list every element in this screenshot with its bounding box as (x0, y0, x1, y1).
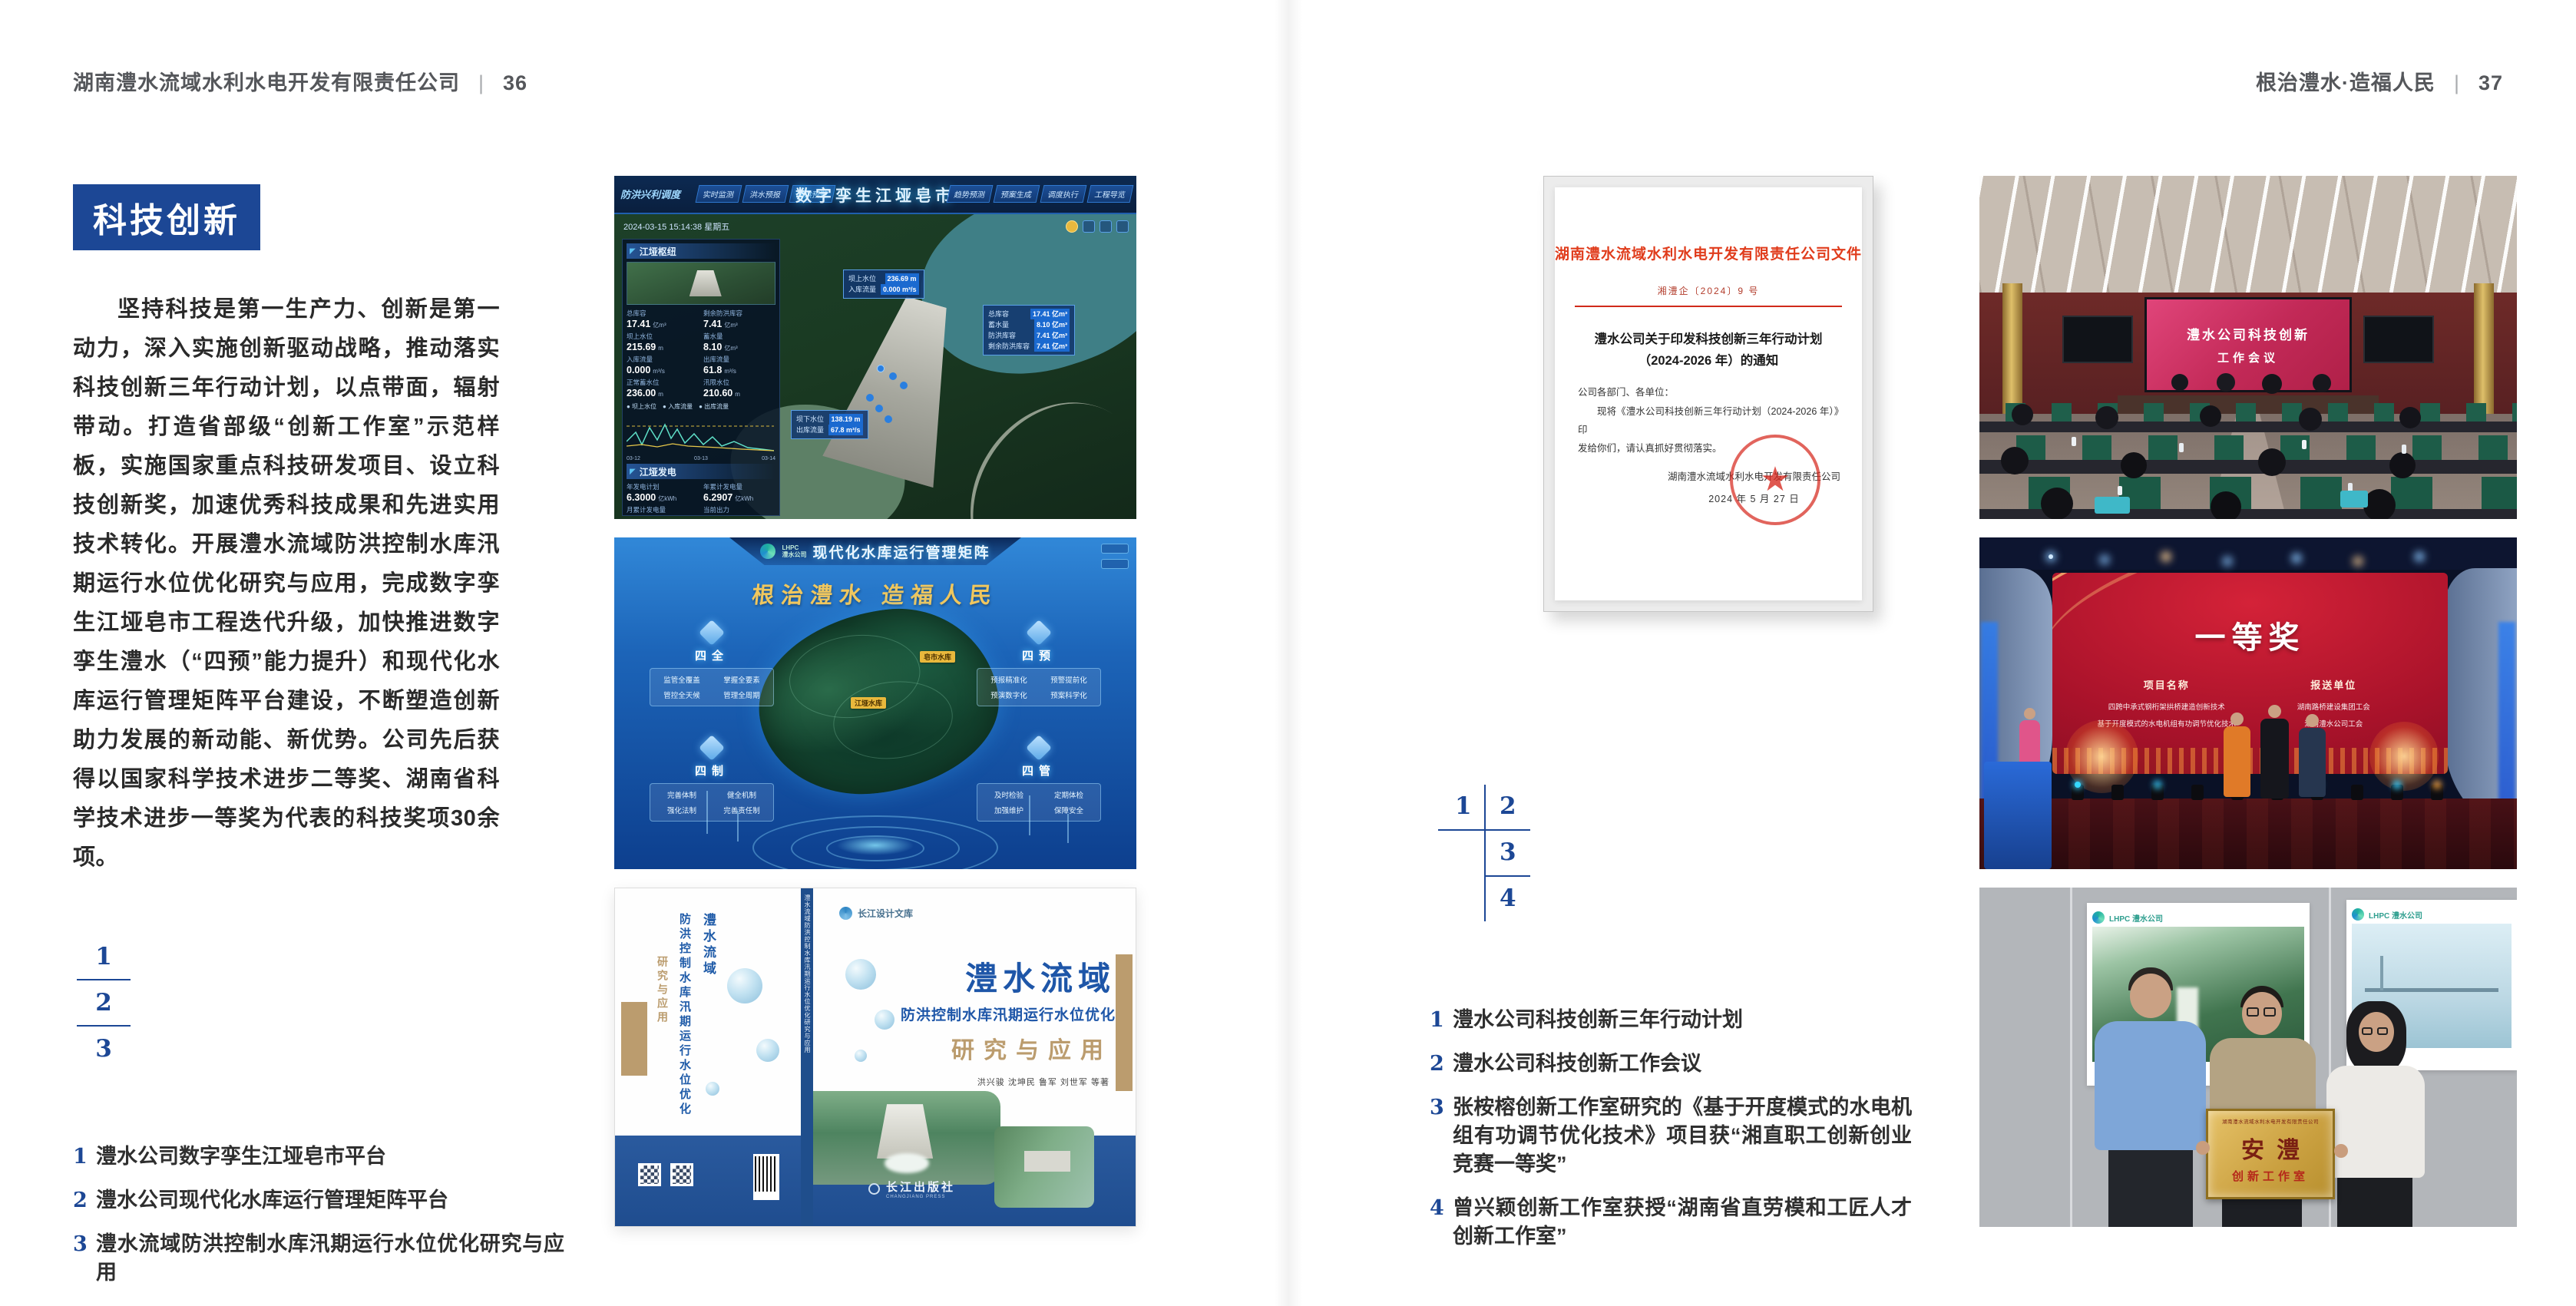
lhpc-logo-icon (2092, 911, 2105, 924)
hand (2196, 1141, 2210, 1155)
chart-x-axis: 03-12 03-13 03-14 (627, 456, 775, 461)
dam-shape (877, 1104, 933, 1159)
index-horizontal-line (1484, 875, 1530, 877)
caption-number: 4 (1430, 1194, 1453, 1222)
publisher-logo-icon (868, 1183, 880, 1195)
caption-row: 2 澧水公司科技创新工作会议 (1430, 1050, 1912, 1078)
right-captions: 1 澧水公司科技创新三年行动计划 2 澧水公司科技创新工作会议 3 张桉榕创新工… (1430, 1006, 1912, 1266)
platform-title: 现代化水库运行管理矩阵 (812, 541, 990, 562)
figure-index-number: 2 (77, 987, 131, 1018)
photo-innovation-studio-plaque: LHPC 澧水公司 LHPC 澧水公司 (1979, 888, 2517, 1227)
mode-label: 防洪兴利调度 (620, 187, 680, 201)
spotlights (2049, 554, 2053, 559)
stage-floor (1979, 798, 2517, 869)
award-title: 一等奖 (2052, 613, 2448, 657)
cover-dam-photo (813, 1091, 1000, 1185)
mountain-road (935, 369, 1136, 519)
water-droplet (706, 1082, 719, 1096)
tab-plan-generation: 预案生成 (994, 185, 1040, 203)
floor-reflection (1979, 798, 2517, 869)
panel-title: 江垭枢纽 (640, 245, 676, 258)
trousers (2108, 1150, 2193, 1227)
page-number-left: 36 (503, 71, 527, 94)
caption-number: 3 (1430, 1093, 1453, 1122)
caption-text: 澧水公司数字孪生江垭皂市平台 (96, 1142, 564, 1171)
platform-slogan: 根治澧水 造福人民 (750, 577, 1000, 610)
document-page: 湖南澧水流域水利水电开发有限责任公司文件 湘澧企〔2024〕9 号 澧水公司关于… (1555, 187, 1862, 600)
monitor-icon (699, 620, 725, 646)
caption-number: 3 (73, 1230, 96, 1258)
maintenance-icon (1026, 735, 1052, 761)
bridge-pylon (2380, 956, 2383, 990)
wall-tv (2062, 316, 2133, 363)
chair-row (1979, 403, 2517, 423)
gate-markers (877, 365, 885, 372)
right-figure-index: 1 2 3 4 (1438, 785, 1532, 921)
poster-logo: LHPC 澧水公司 (2352, 905, 2512, 924)
figure-official-document: 湖南澧水流域水利水电开发有限责任公司文件 湘澧企〔2024〕9 号 澧水公司关于… (1543, 176, 1873, 612)
sail-icon: ◤ (630, 468, 636, 476)
caption-row: 1 澧水公司科技创新三年行动计划 (1430, 1006, 1912, 1034)
tab-dispatch-execution: 调度执行 (1040, 185, 1087, 203)
institution-icon (699, 735, 725, 761)
left-figure-index: 1 2 3 (77, 941, 131, 1064)
document-number: 湘澧企〔2024〕9 号 (1555, 284, 1862, 297)
book-title-main: 澧水流域 (965, 953, 1116, 1000)
water-droplet (875, 1010, 894, 1030)
group-siquan: 四全 监管全覆盖掌握全要素 管控全天候管理全周期 (650, 623, 774, 706)
light-stick (737, 811, 739, 841)
stat-upstream-level: 坝上水位215.69m (627, 332, 699, 353)
group-siguan: 四管 及时检验定期体检 加强维护保障安全 (977, 739, 1101, 822)
poster-logo: LHPC 澧水公司 (2092, 908, 2304, 927)
figure-index-number: 3 (77, 1033, 131, 1064)
index-horizontal-line (1438, 829, 1530, 831)
water-level-chart (627, 412, 774, 452)
right-page-header: 根治澧水·造福人民|37 (2256, 66, 2503, 96)
ceiling (1979, 176, 2517, 293)
platform-header: LHPC 澧水公司 现代化水库运行管理矩阵 (729, 537, 1021, 565)
sail-icon: ◤ (630, 247, 636, 256)
desk-row (1979, 422, 2517, 432)
wall-seam (2070, 888, 2072, 1227)
star-icon: ★ (1760, 463, 1790, 497)
x-tick: 03-14 (762, 456, 775, 461)
dashboard-left-panel: ◤ 江垭枢纽 总库容17.41亿m³ 剩余防洪库容7.41亿m³ 坝上水位215… (622, 239, 780, 516)
tab-trend-forecast: 趋势预测 (947, 185, 994, 203)
glasses-icon (2362, 1027, 2373, 1035)
caption-row: 3 张桉榕创新工作室研究的《基于开度模式的水电机组有功调节优化技术》项目获“湘直… (1430, 1093, 1912, 1179)
panel-header-power: ◤ 江垭发电 (627, 464, 775, 479)
figure-index-number: 4 (1500, 884, 1516, 912)
tab-project-tour: 工程导览 (1087, 185, 1134, 203)
glasses-icon (2247, 1007, 2259, 1017)
photo-innovation-meeting: 澧水公司科技创新 工作会议 (1979, 176, 2517, 519)
header-divider: | (2454, 71, 2460, 94)
hub-stats-grid: 总库容17.41亿m³ 剩余防洪库容7.41亿m³ 坝上水位215.69m 蓄水… (627, 309, 775, 399)
qr-code (638, 1163, 661, 1186)
callout-upstream: 坝上水位236.69 m 入库流量0.000 m³/s (843, 269, 924, 299)
x-tick: 03-13 (694, 456, 708, 461)
light-stick (706, 791, 708, 834)
alert-icon (1066, 220, 1078, 233)
spill-foam (885, 1153, 930, 1174)
caption-number: 1 (1430, 1006, 1453, 1034)
tissue-box (2340, 491, 2368, 508)
chart-legend: ● 坝上水位 ● 入库流量 ● 出库流量 (627, 402, 775, 411)
tissue-box (2095, 497, 2130, 514)
water-droplet (727, 968, 762, 1003)
lhpc-logo-icon (2352, 908, 2364, 921)
glow-orb (2369, 722, 2439, 791)
stat-current-output: 当前出力0.00MW (703, 505, 775, 516)
stat-month-generated: 月累计发电量3259.21万kWh (627, 505, 699, 516)
water-droplet (845, 959, 876, 990)
index-vertical-line (1484, 785, 1486, 921)
figure-index-number: 2 (1500, 792, 1516, 820)
qr-code (670, 1163, 693, 1186)
page-number-right: 37 (2478, 71, 2503, 94)
figure-matrix-platform: LHPC 澧水公司 现代化水库运行管理矩阵 根治澧水 造福人民 皂市水库 江垭水… (614, 537, 1136, 869)
dashboard-tabs-right: 趋势预测 预案生成 调度执行 工程导览 (948, 185, 1132, 203)
chair-row (1979, 435, 2517, 461)
book-title-sub: 防洪控制水库汛期运行水位优化 (901, 1003, 1116, 1024)
stat-total-capacity: 总库容17.41亿m³ (627, 309, 699, 330)
stat-annual-plan: 年发电计划6.3000亿kWh (627, 482, 699, 504)
back-tan-block (621, 1002, 647, 1076)
magazine-spread: 湖南澧水流域水利水电开发有限责任公司|36 根治澧水·造福人民|37 科技创新 … (0, 0, 2576, 1306)
caption-number: 1 (73, 1142, 96, 1171)
innovation-studio-plaque: 湖南澧水流域水利水电开发有限责任公司 安澧 创新工作室 (2206, 1109, 2335, 1199)
desk-row (1979, 509, 2517, 519)
ceiling-light-strips (1979, 176, 2517, 293)
caption-text: 澧水流域防洪控制水库汛期运行水位优化研究与应用 (96, 1230, 564, 1287)
globe-icon (839, 907, 852, 920)
dam-shape (1024, 1151, 1070, 1172)
dashboard-toolbar-icons (1066, 220, 1129, 233)
caption-number: 2 (1430, 1050, 1453, 1078)
figure-book-cover: 澧水流域 防洪控制水库汛期运行水位优化 研究与应用 澧水流域防洪控制水库汛期运行… (614, 888, 1136, 1227)
lhpc-logo-icon (760, 544, 775, 559)
dashboard-topbar: 防洪兴利调度 实时监测 洪水预报 防洪预警 数字孪生江垭皂市 趋势预测 预案生成… (614, 176, 1136, 214)
radar-center-glow (837, 835, 914, 855)
barcode (753, 1154, 779, 1200)
hand (2334, 1144, 2348, 1158)
forecast-icon (1026, 620, 1052, 646)
figure-index-number: 1 (1455, 792, 1472, 820)
panel-title: 江垭发电 (640, 465, 676, 478)
water-bottles (2072, 437, 2076, 446)
stat-remaining-flood-capacity: 剩余防洪库容7.41亿m³ (703, 309, 775, 330)
stat-inflow: 入库流量0.000m³/s (627, 355, 699, 376)
body-paragraph: 坚持科技是第一生产力、创新是第一动力，深入实施创新驱动战略，推动落实科技创新三年… (73, 290, 500, 878)
lhpc-logo-text: LHPC 澧水公司 (782, 544, 806, 558)
glasses-icon (2377, 1027, 2388, 1035)
reservoir-label-jiangya: 江垭水库 (851, 697, 886, 709)
desk-row (1979, 460, 2517, 474)
tab-flood-forecast: 洪水预报 (742, 185, 789, 203)
figure-index-number: 3 (1500, 838, 1516, 866)
stage-light-glow (2075, 782, 2081, 788)
header-divider: | (478, 71, 484, 94)
glasses-icon (2264, 1007, 2276, 1017)
caption-row: 4 曾兴颖创新工作室获授“湖南省直劳模和工匠人才创新工作室” (1430, 1194, 1912, 1251)
caption-row: 1 澧水公司数字孪生江垭皂市平台 (73, 1142, 564, 1171)
caption-text: 张桉榕创新工作室研究的《基于开度模式的水电机组有功调节优化技术》项目获“湘直职工… (1453, 1093, 1912, 1179)
series-logo: 长江设计文库 (839, 907, 913, 920)
chair-row (1979, 477, 2517, 512)
bridge (2365, 988, 2499, 992)
caption-text: 澧水公司科技创新工作会议 (1453, 1050, 1912, 1078)
x-tick: 03-12 (627, 456, 640, 461)
attendee-silhouettes (2171, 374, 2188, 391)
mini-dam-shape (689, 270, 722, 297)
hide-button (1101, 559, 1129, 569)
caption-row: 2 澧水公司现代化水库运行管理矩阵平台 (73, 1186, 564, 1215)
stat-outflow: 出库流量61.8m³/s (703, 355, 775, 376)
caption-text: 曾兴颖创新工作室获授“湖南省直劳模和工匠人才创新工作室” (1453, 1194, 1912, 1251)
group-siyu: 四预 预报精准化预警提前化 预演数字化预案科学化 (977, 623, 1101, 706)
close-button (1101, 544, 1129, 554)
dashboard-timestamp: 2024-03-15 15:14:38 星期五 (623, 220, 729, 233)
document-red-header: 湖南澧水流域水利水电开发有限责任公司文件 (1555, 243, 1862, 263)
front-tan-block (1116, 954, 1133, 1091)
stat-flood-limit-level: 汛限水位210.60m (703, 378, 775, 399)
caption-text: 澧水公司科技创新三年行动计划 (1453, 1006, 1912, 1034)
caption-text: 澧水公司现代化水库运行管理矩阵平台 (96, 1186, 564, 1215)
figure-index-number: 1 (77, 941, 131, 972)
stage-truss (1979, 537, 2517, 570)
wall-tv (2363, 316, 2434, 363)
water-droplet (756, 1039, 779, 1062)
stat-annual-generated: 年累计发电量6.2907亿kWh (703, 482, 775, 504)
figure-digital-twin-dashboard: 防洪兴利调度 实时监测 洪水预报 防洪预警 数字孪生江垭皂市 趋势预测 预案生成… (614, 176, 1136, 519)
locate-icon (1100, 220, 1112, 233)
panel-header-hub: ◤ 江垭枢纽 (627, 243, 775, 259)
light-stick (1029, 795, 1030, 835)
reservoir-label-zaoshi: 皂市水库 (920, 651, 955, 663)
stat-storage: 蓄水量8.10亿m³ (703, 332, 775, 353)
stat-normal-level: 正常蓄水位236.00m (627, 378, 699, 399)
left-page-header: 湖南澧水流域水利水电开发有限责任公司|36 (73, 66, 527, 96)
dashboard-title: 数字孪生江垭皂市 (795, 184, 955, 207)
index-divider-line (77, 1025, 131, 1027)
document-title: 澧水公司关于印发科技创新三年行动计划 （2024-2026 年）的通知 (1555, 329, 1862, 372)
dam-thumbnail (627, 262, 775, 305)
caption-number: 2 (73, 1186, 96, 1215)
settings-icon (1116, 220, 1129, 233)
trousers (2337, 1178, 2412, 1227)
official-red-seal: ★ (1730, 435, 1820, 525)
photo-award-ceremony: 一等奖 项目名称 四跨中承式钢桁架拱桥建造创新技术 基于开度模式的水电机组有功调… (1979, 537, 2517, 869)
book-spine: 澧水流域防洪控制水库汛期运行水位优化研究与应用 (801, 888, 813, 1226)
book-title-tail: 研究与应用 (951, 1031, 1113, 1065)
index-divider-line (77, 979, 131, 980)
motto: 根治澧水·造福人民 (2256, 71, 2435, 94)
cover-dam-photo-small (994, 1126, 1094, 1208)
spine-title: 澧水流域防洪控制水库汛期运行水位优化研究与应用 (803, 894, 812, 1053)
light-stick (1067, 814, 1069, 843)
book-authors: 洪兴骏 沈坤民 鲁军 刘世军 等著 (977, 1076, 1109, 1088)
page-gutter (1275, 0, 1302, 1306)
left-captions: 1 澧水公司数字孪生江垭皂市平台 2 澧水公司现代化水库运行管理矩阵平台 3 澧… (73, 1142, 564, 1302)
water-droplet (855, 1050, 867, 1062)
company-name: 湖南澧水流域水利水电开发有限责任公司 (73, 71, 460, 94)
group-sizhi: 四制 完善体制健全机制 强化法制完善责任制 (650, 739, 774, 822)
layers-icon (1083, 220, 1095, 233)
callout-capacity: 总库容17.41 亿m³ 蓄水量8.10 亿m³ 防洪库容7.41 亿m³ 剩余… (983, 305, 1075, 355)
callout-downstream: 坝下水位138.19 m 出库流量67.8 m³/s (791, 410, 868, 439)
caption-row: 3 澧水流域防洪控制水库汛期运行水位优化研究与应用 (73, 1230, 564, 1287)
tab-realtime-monitor: 实时监测 (696, 185, 742, 203)
document-salutation: 公司各部门、各单位： (1578, 384, 1674, 398)
power-stats-grid: 年发电计划6.3000亿kWh 年累计发电量6.2907亿kWh 月累计发电量3… (627, 482, 775, 516)
publisher-block: 长江出版社 CHANGJIANG PRESS (868, 1179, 955, 1199)
section-title: 科技创新 (73, 184, 260, 250)
award-columns: 项目名称 四跨中承式钢桁架拱桥建造创新技术 基于开度模式的水电机组有功调节优化技… (2083, 677, 2417, 733)
red-rule (1575, 306, 1842, 307)
